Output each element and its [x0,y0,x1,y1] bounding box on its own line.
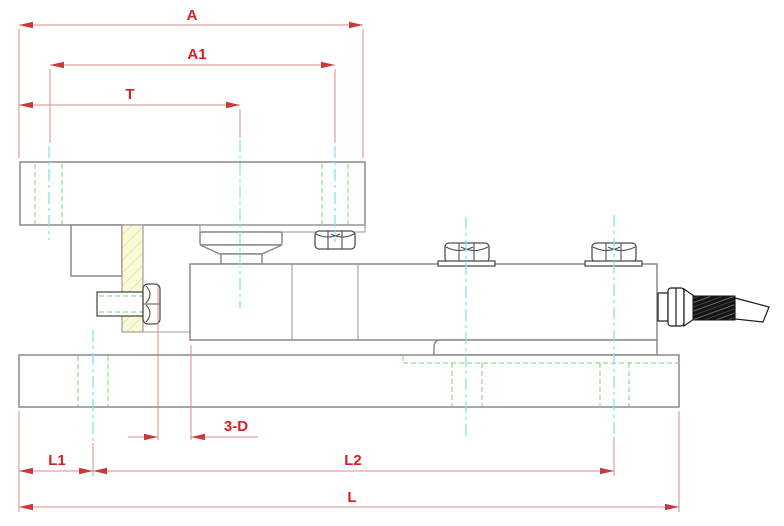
arrowhead [93,468,107,474]
arrowhead [191,434,205,440]
cable [735,298,769,322]
dimension-label-T: T [125,86,134,103]
dimension-label-L: L [347,489,356,506]
technical-drawing-canvas: A A1 T 3-D L1 L2 L [0,0,784,526]
rocker-pin [200,232,282,264]
dimension-label-L1: L1 [48,452,66,469]
arrowhead [19,102,33,108]
arrowhead [600,468,614,474]
dimension-L2: L2 [93,452,614,474]
load-cell-foot [434,340,657,355]
arrowhead [19,468,33,474]
arrowhead [349,22,363,28]
dimension-3D: 3-D [128,418,258,440]
dimension-L: L [19,489,679,510]
arrowhead [226,102,240,108]
arrowhead [144,434,158,440]
dimension-label-A1: A1 [187,46,206,63]
dimension-A1: A1 [50,46,335,68]
dimension-label-A: A [187,7,198,24]
dimension-T: T [19,86,240,108]
arrowhead [50,62,64,68]
arrowhead [321,62,335,68]
dimension-label-3D: 3-D [224,418,248,435]
dimension-L1: L1 [19,452,93,474]
top-plate [20,162,365,232]
arrowhead [665,504,679,510]
cable-braid [693,296,735,320]
arrowhead [19,22,33,28]
arrowhead [79,468,93,474]
weigh-module-side-view: A A1 T 3-D L1 L2 L [0,0,784,526]
arrowhead [19,504,33,510]
dimension-label-L2: L2 [344,452,362,469]
dimension-A: A [19,7,363,28]
cable-gland [658,288,769,326]
load-cell-body [190,264,657,355]
